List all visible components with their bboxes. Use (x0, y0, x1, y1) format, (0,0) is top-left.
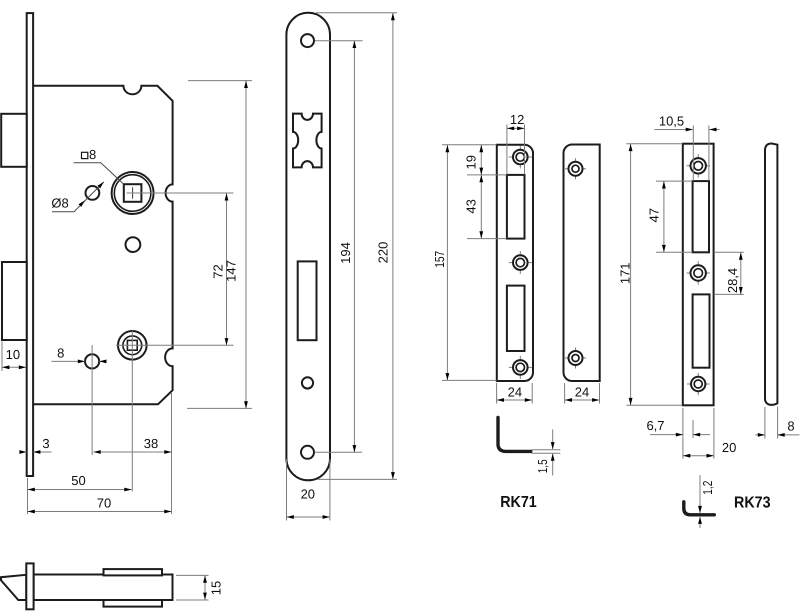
svg-text:1,2: 1,2 (700, 481, 715, 495)
svg-text:70: 70 (97, 496, 111, 511)
svg-text:157: 157 (432, 251, 447, 268)
svg-text:6,7: 6,7 (646, 418, 664, 433)
svg-text:RK71: RK71 (500, 494, 537, 511)
svg-text:147: 147 (224, 260, 239, 282)
svg-text:8: 8 (787, 419, 794, 434)
svg-text:47: 47 (646, 208, 661, 222)
svg-text:20: 20 (722, 440, 736, 455)
svg-text:50: 50 (71, 473, 85, 488)
svg-text:38: 38 (144, 436, 158, 451)
svg-text:24: 24 (508, 385, 522, 400)
svg-text:194: 194 (338, 242, 353, 264)
svg-text:Ø8: Ø8 (51, 196, 68, 211)
svg-text:1,5: 1,5 (535, 459, 550, 473)
svg-text:12: 12 (510, 112, 524, 127)
svg-text:3: 3 (42, 436, 49, 451)
svg-text:RK73: RK73 (734, 494, 771, 511)
svg-text:24: 24 (575, 385, 589, 400)
svg-text:10: 10 (6, 347, 20, 362)
svg-text:28,4: 28,4 (725, 268, 740, 293)
svg-text:10,5: 10,5 (659, 113, 684, 128)
svg-text:19: 19 (464, 155, 479, 169)
svg-text:43: 43 (464, 199, 479, 213)
svg-text:8: 8 (89, 147, 96, 162)
svg-text:220: 220 (376, 242, 391, 264)
svg-text:15: 15 (209, 581, 224, 595)
svg-text:20: 20 (301, 486, 315, 501)
svg-text:8: 8 (57, 346, 64, 361)
